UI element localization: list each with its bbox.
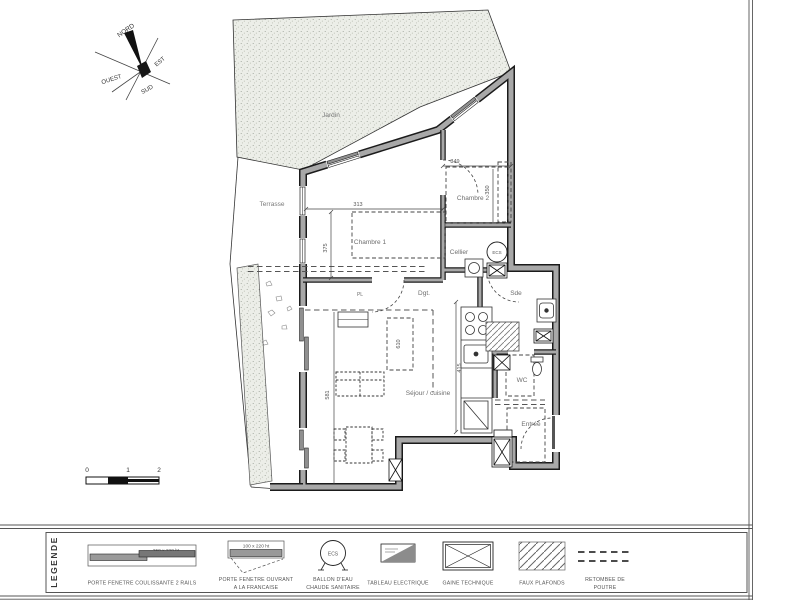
window-left-1 [298, 186, 309, 216]
gaine-box-icon [534, 329, 553, 343]
dim-ch2-depth: 350 [485, 185, 491, 194]
legend-size-label: 100 x 220 ht [243, 544, 270, 550]
room-label-chambre2: Chambre 2 [457, 195, 490, 202]
sliding-door-left-2 [298, 428, 309, 470]
legend-caption: POUTRE [594, 585, 617, 591]
floor-plan-sheet: NORD EST OUEST SUD Jardin Terrasse [0, 0, 800, 600]
legend-title: LEGENDE [49, 536, 59, 588]
dim-sejour-ceiling: 610 [396, 339, 402, 348]
legend: LEGENDE 250 x 220 ht PORTE FENETRE COULI… [46, 533, 747, 593]
floor-plan-canvas: NORD EST OUEST SUD Jardin Terrasse [0, 0, 800, 600]
dim-ch1-depth: 375 [323, 243, 329, 252]
furniture [334, 372, 384, 463]
washer-icon [465, 259, 483, 277]
sideboard [338, 312, 368, 327]
scale-tick-1: 1 [126, 467, 130, 474]
gaine-box-icon [494, 355, 510, 370]
legend-caption: CHAUDE SANITAIRE [306, 585, 360, 591]
room-label-wc: WC [517, 377, 528, 384]
boiler-icon: ECS [487, 242, 507, 262]
sofa [336, 372, 384, 396]
window-left-2 [298, 238, 309, 264]
gaine-box-icon [389, 459, 402, 481]
legend-item-false-ceiling: FAUX PLAFONDS [519, 542, 565, 587]
garden-strip [237, 264, 272, 485]
toilet-icon [531, 357, 543, 376]
legend-caption: GAINE TECHNIQUE [442, 581, 493, 587]
bathroom-sink-icon [537, 299, 556, 322]
dining-table [334, 427, 383, 463]
compass-east-label: EST [154, 56, 167, 68]
legend-caption: RETOMBEE DE [585, 577, 625, 583]
room-label-sejour: Séjour / cuisine [406, 390, 451, 397]
sliding-door-symbol [90, 554, 147, 561]
scale-bar: 0 1 2 [85, 467, 161, 484]
room-label-entree: Entrée [521, 421, 541, 428]
shower-hatch [486, 322, 519, 351]
legend-caption: FAUX PLAFONDS [519, 581, 565, 587]
legend-caption: PORTE FENETRE COULISSANTE 2 RAILS [88, 581, 197, 587]
legend-item-french-door: 100 x 220 ht PORTE FENETRE OUVRANT A LA … [219, 541, 294, 591]
boiler-label: ECS [492, 250, 501, 255]
compass-rose: NORD EST OUEST SUD [95, 22, 170, 100]
window-slant-2 [449, 95, 481, 123]
legend-caption: TABLEAU ELECTRIQUE [367, 581, 429, 587]
room-label-placard: PL [357, 292, 363, 298]
gaine-box-icon [492, 437, 512, 467]
room-label-cellier: Cellier [450, 249, 469, 256]
false-ceiling-zones [352, 162, 545, 462]
dim-ch2-width: 349 [450, 159, 459, 165]
appliance-icon [464, 401, 488, 429]
sliding-door-left-1 [298, 306, 309, 372]
gaine-box-icon [487, 263, 507, 278]
legend-item-electrical-panel: TABLEAU ELECTRIQUE [367, 544, 429, 587]
legend-item-technical-shaft: GAINE TECHNIQUE [442, 542, 493, 587]
terrace-label: Terrasse [260, 201, 285, 208]
dim-ch1-width: 313 [353, 202, 362, 208]
legend-caption: A LA FRANCAISE [234, 585, 279, 591]
kitchen-sink-icon [464, 345, 488, 363]
planting-marks [262, 281, 292, 345]
legend-item-beam: RETOMBEE DE POUTRE [578, 552, 632, 591]
scale-tick-0: 0 [85, 467, 89, 474]
compass-west-label: OUEST [101, 74, 123, 86]
legend-item-water-heater: ECS BALLON D'EAU CHAUDE SANITAIRE [306, 541, 360, 592]
false-ceiling-icon [519, 542, 565, 570]
legend-item-sliding-door: 250 x 220 ht PORTE FENETRE COULISSANTE 2… [88, 545, 197, 587]
legend-caption: BALLON D'EAU [313, 577, 353, 583]
scale-tick-2: 2 [157, 467, 161, 474]
dim-kitchen-depth: 415 [457, 363, 463, 372]
room-label-degagement: Dgt. [418, 290, 430, 297]
dim-sejour-depth: 581 [325, 390, 331, 399]
north-arrow-icon [124, 30, 143, 70]
garden-area: Jardin [233, 10, 511, 170]
room-label-sde: Sde [510, 290, 522, 297]
compass-south-label: SUD [141, 84, 156, 96]
room-label-chambre1: Chambre 1 [354, 239, 387, 246]
garden-label: Jardin [322, 112, 340, 119]
legend-caption: PORTE FENETRE OUVRANT [219, 577, 294, 583]
french-door-symbol [230, 550, 282, 557]
legend-badge: ECS [328, 552, 339, 558]
